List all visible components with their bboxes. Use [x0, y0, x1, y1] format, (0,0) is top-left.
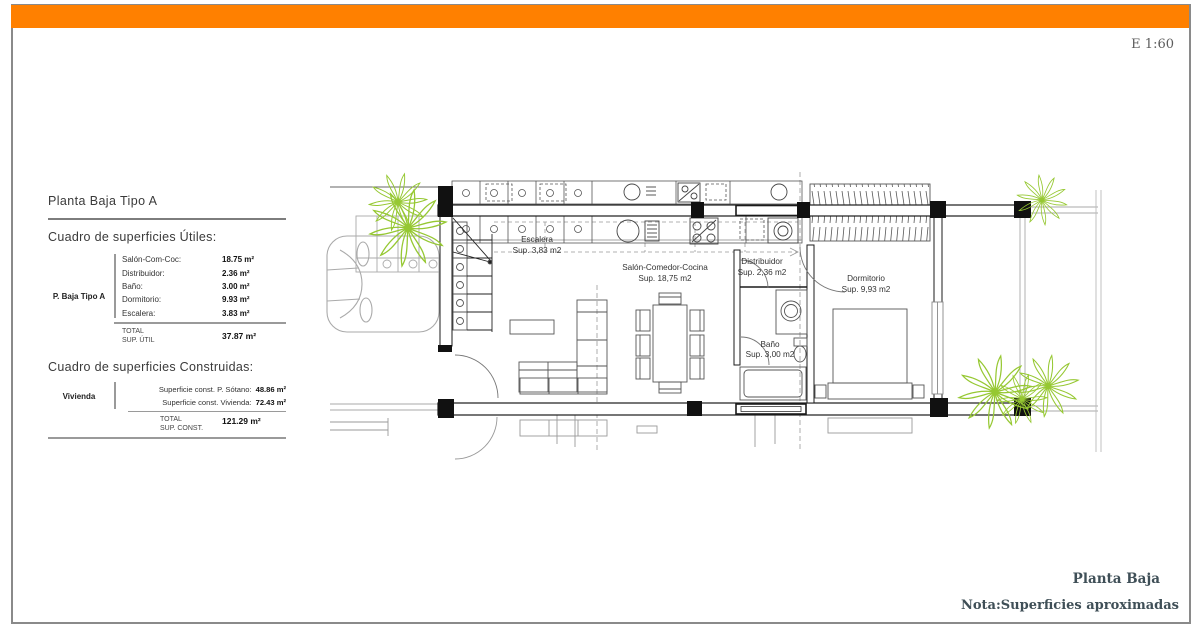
toilet-tank: [794, 338, 807, 346]
accent-bar: [11, 5, 1189, 28]
divider: [114, 322, 286, 324]
room-area-salon: Sup. 18,75 m2: [638, 274, 692, 283]
lintel: [736, 206, 804, 216]
room-labels: Escalera Sup. 3,83 m2 Salón-Comedor-Coci…: [513, 235, 891, 359]
row-value: 9.93 m²: [222, 295, 250, 304]
sink-upper: [624, 184, 640, 200]
cut-furniture-below: [330, 415, 912, 459]
row-label: Superficie const. P. Sótano:: [159, 385, 252, 394]
table-row: Superficie const. P. Sótano:48.86 m²: [120, 383, 286, 396]
nightstand: [815, 385, 826, 398]
stair-wall: [440, 216, 452, 346]
floor-plan: Escalera Sup. 3,83 m2 Salón-Comedor-Coci…: [325, 168, 1110, 460]
total-label: TOTAL SUP. CONST.: [160, 415, 203, 433]
construidas-rows: Superficie const. P. Sótano:48.86 m² Sup…: [120, 383, 286, 409]
bed: [815, 309, 924, 399]
table-row: Distribuidor:2.36 m²: [122, 266, 286, 279]
room-area-escalera: Sup. 3,83 m2: [513, 246, 562, 255]
sheet-note: Nota:Superficies aproximadas: [961, 598, 1179, 613]
divider: [128, 411, 286, 412]
total-subword: SUP. CONST.: [160, 425, 203, 432]
total-value: 37.87 m²: [222, 331, 256, 341]
utiles-table: P. Baja Tipo A Salón-Com-Coc:18.75 m² Di…: [48, 252, 286, 344]
total-subword: SUP. ÚTIL: [122, 337, 155, 344]
stairs: [453, 218, 492, 332]
row-value: 3.00 m²: [222, 282, 250, 291]
room-label-bano: Baño: [760, 340, 780, 349]
washer-upper: [771, 184, 787, 200]
dining-table: [636, 293, 704, 393]
room-area-bano: Sup. 3,00 m2: [746, 350, 795, 359]
total-value: 121.29 m²: [222, 416, 261, 426]
room-label-salon: Salón-Comedor-Cocina: [622, 263, 708, 272]
table-row: Escalera:3.83 m²: [122, 307, 286, 320]
row-value: 3.83 m²: [222, 309, 250, 318]
divider: [48, 437, 286, 439]
entrance-door: [455, 355, 498, 398]
room-label-dormitorio: Dormitorio: [847, 274, 885, 283]
right-window: [932, 302, 943, 394]
construidas-table: Vivienda Superficie const. P. Sótano:48.…: [48, 382, 286, 436]
row-label: Salón-Com-Coc:: [122, 255, 222, 264]
sink-lower: [617, 220, 639, 242]
row-label: Baño:: [122, 282, 222, 291]
row-label: Superficie const. Vivienda:: [162, 398, 251, 407]
nightstand: [913, 385, 924, 398]
construidas-heading: Cuadro de superficies Construidas:: [48, 360, 253, 374]
construidas-group-label: Vivienda: [48, 392, 110, 401]
total-label: TOTAL SUP. ÚTIL: [122, 327, 155, 345]
row-value: 48.86 m²: [256, 385, 286, 394]
table-row: Baño:3.00 m²: [122, 280, 286, 293]
row-label: Distribuidor:: [122, 269, 222, 278]
table-row: Salón-Com-Coc:18.75 m²: [122, 253, 286, 266]
utiles-heading: Cuadro de superficies Útiles:: [48, 230, 217, 244]
living-furniture: [510, 300, 607, 394]
utiles-group-label: P. Baja Tipo A: [48, 292, 110, 301]
divider: [114, 254, 116, 318]
panel-title: Planta Baja Tipo A: [48, 194, 157, 208]
total-word: TOTAL: [122, 328, 144, 335]
utiles-rows: Salón-Com-Coc:18.75 m² Distribuidor:2.36…: [122, 253, 286, 320]
row-value: 18.75 m²: [222, 255, 254, 264]
total-word: TOTAL: [160, 416, 182, 423]
sheet-title: Planta Baja: [1073, 571, 1160, 587]
bathtub: [740, 367, 806, 400]
row-label: Dormitorio:: [122, 295, 222, 304]
room-area-dormitorio: Sup. 9,93 m2: [842, 285, 891, 294]
room-area-distribuidor: Sup. 2,36 m2: [738, 268, 787, 277]
scale-label: E 1:60: [1131, 37, 1174, 52]
divider: [48, 218, 286, 220]
row-value: 72.43 m²: [256, 398, 286, 407]
coffee-table: [510, 320, 554, 334]
row-value: 2.36 m²: [222, 269, 250, 278]
divider: [114, 382, 116, 409]
room-label-escalera: Escalera: [521, 235, 553, 244]
room-label-distribuidor: Distribuidor: [741, 257, 783, 266]
table-row: Superficie const. Vivienda:72.43 m²: [120, 396, 286, 409]
table-row: Dormitorio:9.93 m²: [122, 293, 286, 306]
row-label: Escalera:: [122, 309, 222, 318]
bath-dorm-wall: [807, 245, 814, 403]
